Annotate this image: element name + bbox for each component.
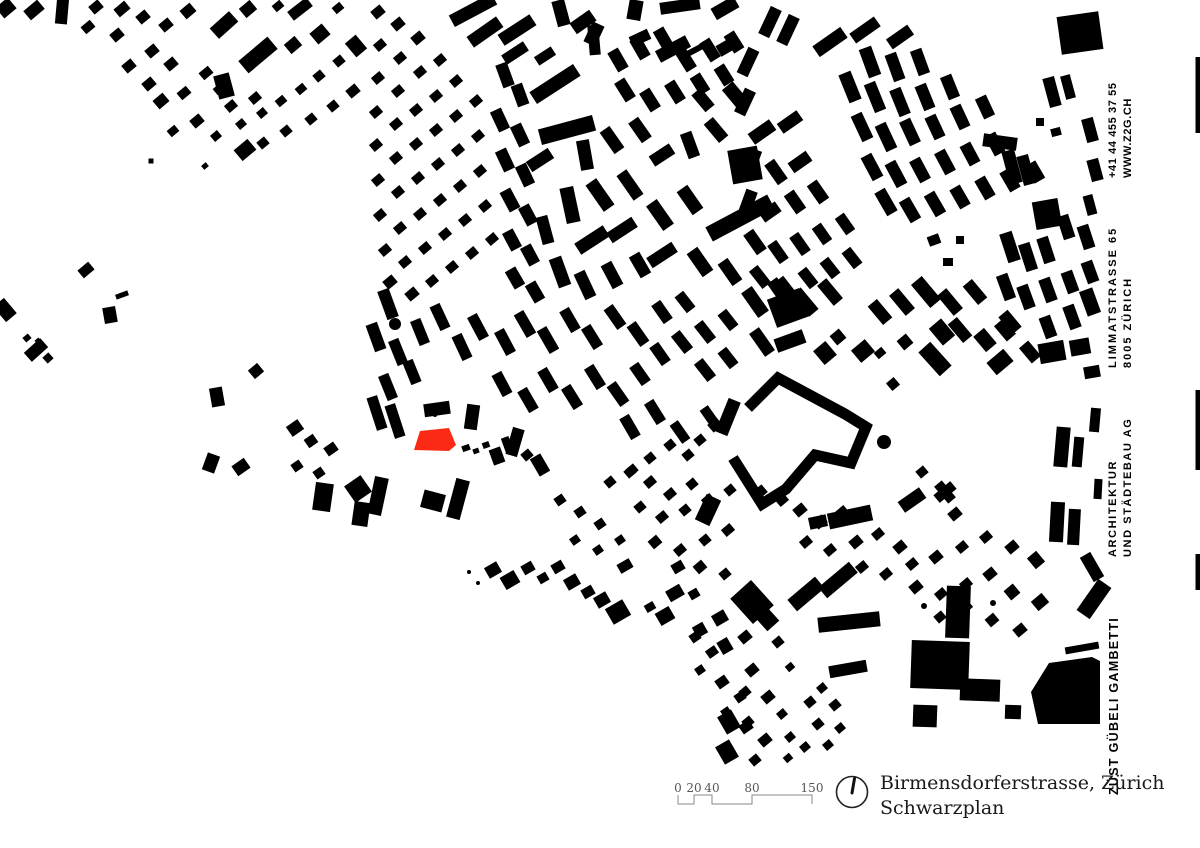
scale-bar [678, 795, 812, 804]
building-footprint [1077, 224, 1096, 251]
building-footprint [445, 260, 459, 274]
building-footprint [284, 36, 302, 54]
building-footprint [879, 567, 893, 581]
building-footprint [163, 56, 179, 71]
building-footprint [312, 466, 325, 479]
building-footprint [943, 258, 953, 266]
building-footprint [834, 722, 846, 734]
building-footprint [536, 572, 549, 585]
building-footprint [461, 444, 471, 452]
building-footprint [899, 118, 921, 147]
building-footprint [628, 117, 652, 144]
building-footprint [256, 107, 268, 119]
building-footprint [848, 534, 864, 549]
building-footprint [472, 448, 479, 455]
building-footprint [816, 682, 828, 694]
building-footprint [537, 367, 559, 393]
building-footprint [764, 159, 788, 186]
building-footprint [605, 599, 631, 625]
building-footprint [391, 185, 405, 199]
building-footprint [484, 561, 502, 578]
building-footprint [569, 534, 581, 546]
building-footprint [1069, 337, 1091, 356]
schwarzplan-sheet: { "colors": { "building": "#000000", "hi… [0, 0, 1200, 848]
building-footprint [897, 334, 914, 351]
building-footprint [777, 110, 804, 134]
building-footprint [1037, 340, 1066, 364]
plan-title: Birmensdorferstrasse, Zürich Schwarzplan [880, 771, 1165, 821]
building-footprint [911, 276, 941, 308]
titleblock-profession: ARCHITEKTUR UND STÄDTEBAU AG [1106, 418, 1136, 557]
building-footprint [767, 240, 789, 264]
building-footprint [1004, 539, 1020, 554]
building-footprint [871, 527, 885, 541]
building-footprint [433, 413, 437, 417]
building-footprint [698, 533, 711, 546]
building-footprint [1060, 74, 1076, 100]
building-footprint [559, 307, 581, 333]
building-footprint [908, 579, 924, 594]
building-footprint [248, 91, 262, 105]
building-footprint [413, 207, 427, 221]
building-footprint [272, 0, 285, 12]
building-footprint [451, 143, 465, 157]
building-footprint [838, 71, 861, 104]
building-footprint [675, 291, 696, 314]
building-footprint [771, 635, 784, 648]
building-footprint [924, 191, 946, 218]
building-footprint [737, 47, 760, 77]
building-footprint [592, 544, 604, 556]
building-footprint [629, 362, 651, 386]
building-footprint [784, 731, 796, 743]
building-footprint [886, 25, 914, 50]
building-footprint [167, 125, 180, 138]
building-footprint [875, 122, 898, 152]
building-footprint [1031, 657, 1100, 724]
building-footprint [312, 482, 334, 512]
building-footprint [576, 139, 594, 171]
building-footprint [1039, 315, 1058, 340]
building-footprint [975, 94, 995, 119]
building-footprint [449, 109, 463, 123]
building-footprint [530, 453, 550, 476]
building-footprint [830, 329, 847, 346]
building-footprint [425, 274, 439, 288]
building-footprint [601, 261, 624, 290]
building-footprint [453, 179, 467, 193]
building-footprint [614, 534, 626, 546]
building-footprint [783, 753, 794, 764]
building-footprint [693, 560, 708, 575]
building-footprint [467, 16, 504, 47]
building-footprint [309, 23, 330, 44]
building-footprint [520, 561, 535, 576]
building-footprint [517, 387, 539, 413]
building-footprint [787, 577, 824, 612]
building-footprint [717, 709, 741, 734]
building-footprint [573, 505, 586, 518]
firm-name: ZÜST GÜBELI GAMBETTI [1107, 617, 1122, 795]
building-footprint [385, 403, 406, 439]
building-footprint [201, 162, 209, 170]
building-footprint [494, 328, 516, 356]
building-footprint [326, 99, 339, 112]
building-footprint [1061, 270, 1080, 295]
building-footprint [563, 573, 581, 590]
titleblock-address: LIMMATSTRASSE 65 8005 ZÜRICH [1106, 227, 1136, 368]
building-footprint [502, 228, 522, 251]
building-footprint [886, 377, 900, 391]
building-footprint [248, 363, 264, 379]
building-footprint [1038, 277, 1057, 304]
building-footprint [1080, 552, 1104, 582]
building-footprint [694, 320, 716, 344]
building-footprint [614, 77, 636, 102]
building-footprint [433, 193, 447, 207]
building-footprint [646, 242, 678, 268]
building-footprint [495, 62, 514, 89]
building-footprint [659, 0, 700, 15]
building-footprint [714, 674, 730, 689]
building-footprint [492, 371, 513, 397]
building-footprint [788, 151, 813, 173]
building-footprint [1196, 554, 1200, 590]
building-footprint [393, 221, 407, 235]
building-footprint [664, 79, 686, 104]
building-footprint [344, 475, 372, 503]
profession-line1: ARCHITEKTUR [1106, 418, 1121, 557]
building-footprint [189, 113, 205, 128]
building-footprint [312, 69, 325, 82]
building-footprint [275, 95, 288, 108]
building-footprint [433, 53, 447, 67]
building-footprint [982, 566, 998, 581]
building-footprint [404, 286, 420, 301]
scale-tick-label: 0 [674, 781, 682, 795]
building-footprint [55, 0, 69, 24]
building-footprint [1032, 198, 1062, 230]
building-footprint [390, 16, 406, 31]
building-footprint [851, 339, 875, 363]
building-footprint [885, 160, 908, 189]
plan-title-line1: Birmensdorferstrasse, Zürich [880, 771, 1165, 796]
building-footprint [603, 475, 616, 488]
highlighted-building [414, 428, 456, 451]
scale-tick-label: 80 [744, 781, 759, 795]
building-footprint [812, 223, 832, 246]
building-footprint [789, 232, 811, 256]
address-city: 8005 ZÜRICH [1121, 227, 1136, 368]
north-arrow-icon [837, 777, 868, 808]
building-footprint [584, 364, 606, 390]
building-footprint [687, 588, 700, 601]
building-footprint [956, 236, 964, 244]
building-footprint [626, 0, 643, 21]
building-footprint [202, 452, 220, 473]
building-footprint [947, 506, 963, 521]
building-footprint [663, 487, 677, 501]
building-footprint [113, 1, 130, 18]
building-footprint [209, 387, 225, 408]
building-footprint [743, 229, 767, 256]
building-footprint [898, 487, 927, 513]
building-footprint [828, 698, 841, 711]
building-footprint [1053, 426, 1070, 467]
building-footprint [234, 139, 257, 161]
building-footprint [934, 149, 956, 176]
building-footprint [469, 94, 483, 108]
building-footprint [718, 258, 743, 286]
building-footprint [859, 46, 881, 79]
building-footprint [877, 435, 891, 449]
building-footprint [874, 188, 897, 217]
building-footprint [784, 190, 806, 215]
building-footprint [934, 587, 948, 601]
building-footprint [949, 184, 970, 209]
building-footprint [464, 404, 480, 431]
building-footprint [785, 662, 796, 673]
building-footprint [537, 326, 560, 354]
phone-number: +41 44 455 37 55 [1106, 82, 1121, 178]
building-footprint [1019, 340, 1041, 363]
building-footprint [1089, 408, 1101, 433]
building-footprint [649, 143, 676, 166]
building-footprint [235, 118, 247, 130]
building-footprint [607, 47, 628, 72]
building-footprint [295, 83, 308, 96]
building-footprint [238, 37, 277, 74]
building-footprint [704, 117, 729, 143]
building-footprint [467, 570, 471, 574]
building-footprint [760, 689, 776, 704]
building-footprint [1196, 57, 1200, 133]
building-footprint [525, 280, 545, 303]
building-footprint [431, 157, 445, 171]
building-footprint [446, 478, 470, 520]
building-footprint [382, 274, 398, 289]
building-footprint [915, 465, 928, 478]
building-footprint [670, 560, 685, 575]
building-footprint [1012, 622, 1028, 637]
building-footprint [144, 43, 160, 58]
building-footprint [580, 585, 595, 600]
building-footprint [851, 112, 874, 142]
building-footprint [671, 330, 693, 354]
building-footprint [505, 266, 525, 289]
building-footprint [369, 138, 383, 152]
building-footprint [940, 74, 960, 101]
building-footprint [391, 84, 405, 98]
building-footprint [476, 581, 480, 585]
building-footprint [827, 505, 873, 530]
building-footprint [744, 662, 760, 677]
building-footprint [915, 83, 936, 112]
building-footprint [986, 349, 1013, 375]
building-footprint [152, 93, 169, 110]
building-footprint [102, 306, 118, 324]
building-footprint [482, 441, 491, 449]
building-footprint [693, 433, 706, 446]
building-footprint [500, 570, 521, 590]
building-footprint [323, 441, 339, 456]
building-footprint [388, 338, 408, 366]
building-footprint [677, 185, 704, 215]
building-footprint [534, 46, 556, 65]
building-footprint [673, 543, 687, 557]
building-footprint [389, 318, 401, 330]
building-footprint [874, 347, 887, 360]
building-footprint [410, 30, 426, 45]
building-footprint [141, 76, 157, 91]
building-footprint [367, 476, 389, 516]
building-footprint [835, 213, 855, 236]
website-url: WWW.Z2G.CH [1121, 82, 1136, 178]
building-footprint [928, 549, 944, 564]
building-footprint [210, 11, 239, 39]
building-footprint [600, 126, 625, 154]
building-footprint [718, 567, 731, 580]
building-footprint [711, 609, 729, 626]
building-footprint [649, 342, 671, 366]
building-footprint [467, 313, 489, 341]
building-footprint [776, 14, 800, 46]
building-footprint [287, 0, 313, 21]
building-footprint [409, 137, 423, 151]
building-footprint [627, 321, 650, 347]
building-footprint [808, 514, 828, 529]
building-footprint [758, 6, 782, 38]
building-footprint [378, 243, 392, 257]
scale-tick-label: 150 [801, 781, 824, 795]
building-footprint [705, 645, 719, 659]
building-footprint [304, 434, 319, 449]
building-footprint [345, 83, 361, 98]
building-footprint [842, 247, 863, 270]
scale-tick-label: 20 [686, 781, 701, 795]
building-footprint [371, 173, 385, 187]
building-footprint [798, 267, 819, 290]
building-footprint [909, 157, 931, 184]
building-footprint [452, 333, 473, 361]
building-footprint [715, 739, 739, 764]
building-footprint [828, 660, 868, 678]
building-footprint [757, 732, 773, 747]
building-footprint [514, 310, 537, 338]
building-footprint [680, 131, 700, 160]
firm-logo: ZÜST GÜBELI GAMBETTI [1107, 617, 1122, 795]
courtyard-block [733, 378, 866, 504]
building-footprint [818, 562, 858, 598]
building-footprint [411, 171, 425, 185]
building-footprint [616, 169, 643, 200]
building-footprint [644, 601, 657, 613]
building-footprint [644, 399, 666, 425]
building-footprint [710, 0, 739, 20]
building-footprint [973, 328, 997, 352]
building-footprint [982, 133, 1017, 151]
building-footprint [551, 0, 570, 27]
building-footprint [651, 300, 673, 324]
building-footprint [286, 419, 304, 437]
building-footprint [1081, 117, 1099, 143]
building-footprint [792, 502, 808, 517]
building-footprint [1079, 287, 1101, 316]
building-footprint [88, 0, 104, 15]
building-footprint [177, 86, 192, 101]
building-footprint [471, 129, 485, 143]
building-footprint [429, 89, 443, 103]
building-footprint [549, 256, 571, 289]
building-footprint [741, 286, 769, 318]
building-footprint [606, 217, 638, 243]
building-footprint [498, 14, 537, 46]
building-footprint [945, 586, 971, 639]
building-footprint [960, 141, 981, 166]
building-footprint [574, 270, 597, 300]
building-footprint [581, 324, 603, 350]
building-footprint [665, 584, 685, 602]
building-footprint [937, 288, 963, 316]
building-footprint [369, 105, 383, 119]
building-footprint [351, 501, 370, 527]
building-footprint [485, 232, 499, 246]
building-footprint [1049, 502, 1065, 543]
building-footprint [955, 540, 969, 554]
building-footprint [889, 288, 915, 316]
building-footprint [643, 451, 656, 464]
building-footprint [1036, 118, 1044, 126]
building-footprint [813, 341, 837, 365]
building-footprint [811, 717, 824, 730]
building-footprint [616, 558, 633, 574]
building-footprint [687, 247, 714, 277]
building-footprint [681, 448, 694, 461]
building-footprint [960, 678, 1001, 701]
building-footprint [1086, 158, 1103, 182]
building-footprint [905, 557, 919, 571]
building-footprint [199, 66, 214, 81]
building-footprint [115, 290, 129, 299]
building-footprint [774, 329, 807, 352]
building-footprint [718, 309, 739, 332]
building-footprint [420, 489, 446, 512]
building-footprint [224, 99, 238, 113]
building-footprint [629, 252, 651, 279]
building-footprint [77, 262, 94, 279]
building-footprint [518, 203, 538, 226]
building-footprint [639, 87, 661, 112]
building-footprint [694, 358, 716, 382]
building-footprint [655, 510, 669, 524]
building-footprint [304, 112, 317, 125]
building-footprint [812, 27, 847, 57]
building-footprint [332, 54, 345, 67]
building-footprint [377, 288, 399, 320]
building-footprint [918, 342, 951, 376]
building-footprint [913, 705, 938, 728]
building-footprint [678, 503, 691, 516]
building-footprint [963, 279, 988, 305]
building-footprint [478, 199, 492, 213]
building-footprint [646, 199, 674, 231]
building-footprint [465, 246, 479, 260]
building-footprint [0, 0, 17, 19]
building-footprint [823, 543, 837, 557]
building-footprint [889, 87, 911, 117]
building-footprint [135, 9, 151, 24]
building-footprint [279, 124, 292, 137]
